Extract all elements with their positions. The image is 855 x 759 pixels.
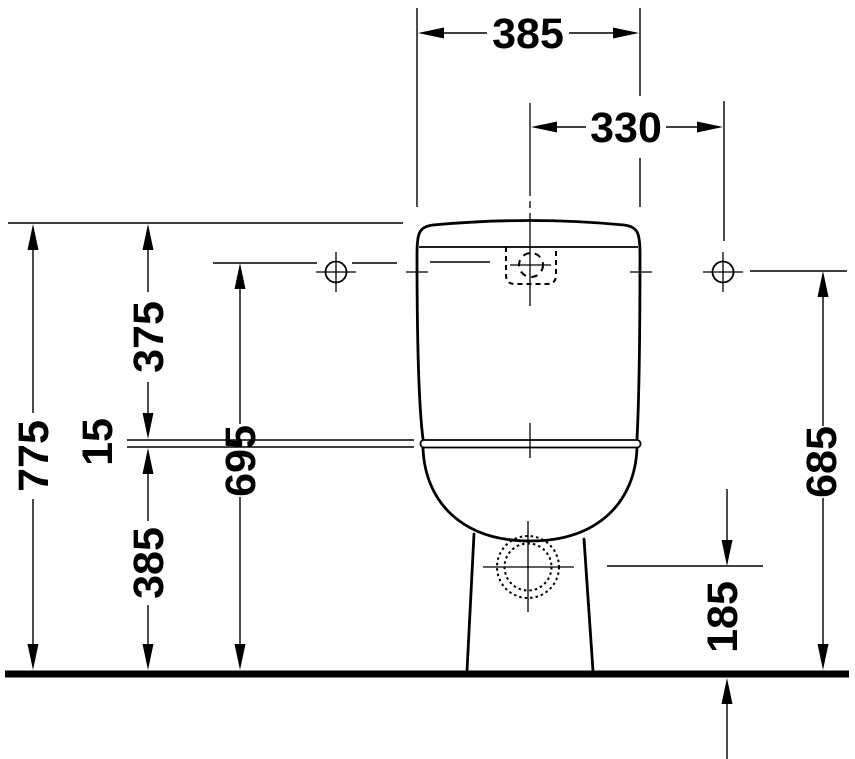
label-fixing-hole-height: 685 [798, 426, 846, 498]
label-tank-top-to-seat: 375 [125, 301, 173, 373]
label-overall-height: 775 [10, 420, 58, 492]
technical-drawing-sheet: 385 330 775 375 15 695 385 685 185 [0, 0, 855, 759]
label-flush-hole-spacing: 330 [590, 104, 662, 152]
label-outlet-center-height: 185 [699, 581, 747, 653]
label-flush-center-height: 695 [217, 425, 265, 497]
toilet-front-elevation-drawing: 385 330 775 375 15 695 385 685 185 [0, 0, 855, 759]
label-seat-joint-gap: 15 [74, 418, 122, 466]
label-tank-width: 385 [492, 10, 564, 58]
label-seat-height: 385 [125, 527, 173, 599]
